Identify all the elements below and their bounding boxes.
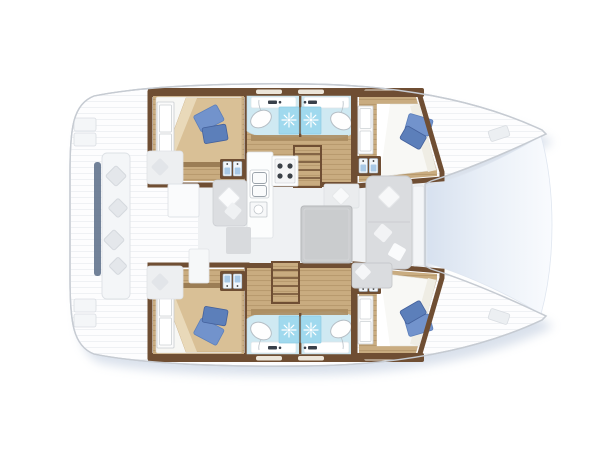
dining-table: [301, 206, 352, 263]
forward-wardrobe: [358, 106, 373, 154]
shower-sunburst-icon: [282, 113, 296, 127]
cockpit-locker: [189, 249, 209, 283]
saloon-front-window-band: [413, 186, 424, 266]
floor-plan-canvas: [0, 0, 600, 450]
storage-cabinet: [356, 156, 381, 176]
storage-cabinet: [220, 159, 245, 179]
sofa-extension: [352, 263, 392, 288]
stove-top: [275, 159, 295, 183]
cockpit-coaming: [94, 162, 101, 276]
starboard-companionway-steps: [272, 262, 299, 303]
sink-basin: [253, 173, 267, 184]
catamaran-floor-plan: [0, 0, 600, 450]
cockpit-table: [168, 184, 199, 217]
sink-basin: [253, 186, 267, 197]
oven-dial: [254, 205, 263, 214]
side-seat: [226, 227, 251, 254]
shower-sunburst-icon: [304, 113, 318, 127]
